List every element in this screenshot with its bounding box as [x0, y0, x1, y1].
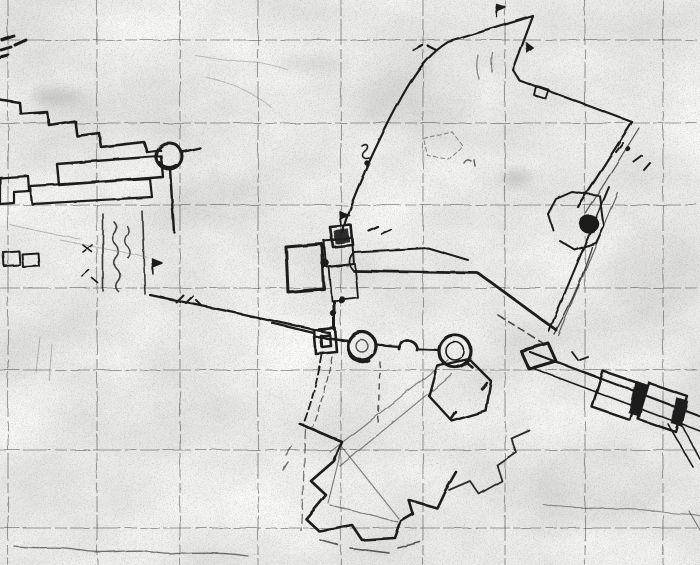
castle-blob-2	[339, 297, 346, 304]
scan-smudge	[175, 175, 285, 225]
scan-smudge	[360, 70, 480, 130]
dot-east-wall	[626, 147, 631, 152]
squiggle-dot	[365, 161, 370, 166]
scan-smudge	[503, 172, 529, 184]
scan-smudge	[530, 445, 670, 525]
scan-smudge	[31, 89, 83, 105]
castle-blob-1	[321, 259, 329, 267]
map-canvas	[0, 0, 700, 565]
scanned-map-page	[0, 0, 700, 565]
